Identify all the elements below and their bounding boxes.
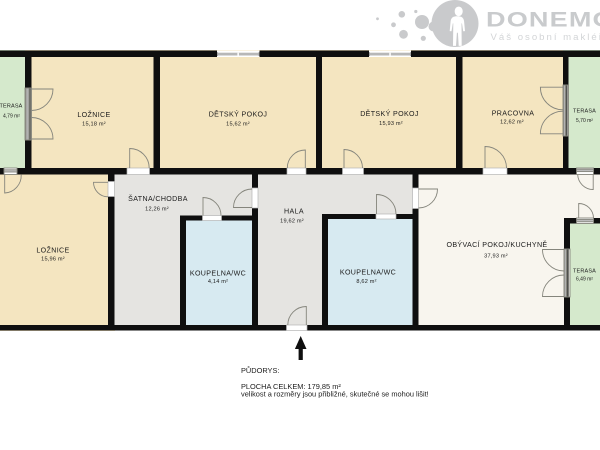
svg-text:KOUPELNA/WC: KOUPELNA/WC: [190, 270, 246, 278]
svg-text:6,49 m²: 6,49 m²: [576, 277, 593, 283]
svg-text:15,62 m²: 15,62 m²: [226, 122, 250, 128]
svg-text:4,14 m²: 4,14 m²: [208, 279, 228, 285]
svg-text:KOUPELNA/WC: KOUPELNA/WC: [340, 269, 396, 277]
svg-text:OBÝVACÍ POKOJ/KUCHYNĚ: OBÝVACÍ POKOJ/KUCHYNĚ: [446, 240, 547, 249]
svg-text:DĚTSKÝ POKOJ: DĚTSKÝ POKOJ: [209, 110, 268, 119]
svg-text:PŮDORYS:: PŮDORYS:: [241, 366, 279, 375]
svg-text:TERASA: TERASA: [0, 104, 23, 110]
svg-text:ŠATNA/CHODBA: ŠATNA/CHODBA: [128, 194, 188, 203]
svg-text:15,96 m²: 15,96 m²: [41, 257, 65, 263]
svg-text:19,62 m²: 19,62 m²: [280, 219, 304, 225]
svg-text:DONEMOVITOSTI: DONEMOVITOSTI: [486, 8, 600, 31]
svg-text:TERASA: TERASA: [573, 269, 596, 275]
svg-text:PRACOVNA: PRACOVNA: [492, 110, 535, 118]
svg-text:LOŽNICE: LOŽNICE: [36, 246, 69, 255]
svg-text:12,26 m²: 12,26 m²: [145, 207, 169, 213]
svg-text:37,93 m²: 37,93 m²: [484, 254, 508, 260]
svg-text:15,93 m²: 15,93 m²: [379, 121, 403, 127]
svg-text:DĚTSKÝ POKOJ: DĚTSKÝ POKOJ: [360, 109, 419, 118]
svg-text:TERASA: TERASA: [573, 109, 596, 115]
svg-text:15,18 m²: 15,18 m²: [82, 122, 106, 128]
svg-text:HALA: HALA: [284, 208, 304, 216]
svg-text:8,62 m²: 8,62 m²: [356, 279, 376, 285]
svg-text:Váš osobní makléř: Váš osobní makléř: [491, 32, 600, 43]
svg-text:5,70 m²: 5,70 m²: [576, 118, 593, 124]
svg-text:velikost a rozměry jsou přibli: velikost a rozměry jsou přibližné, skute…: [241, 390, 429, 399]
svg-text:4,79 m²: 4,79 m²: [3, 114, 20, 120]
svg-text:LOŽNICE: LOŽNICE: [77, 110, 110, 119]
svg-text:12,62 m²: 12,62 m²: [500, 120, 524, 126]
